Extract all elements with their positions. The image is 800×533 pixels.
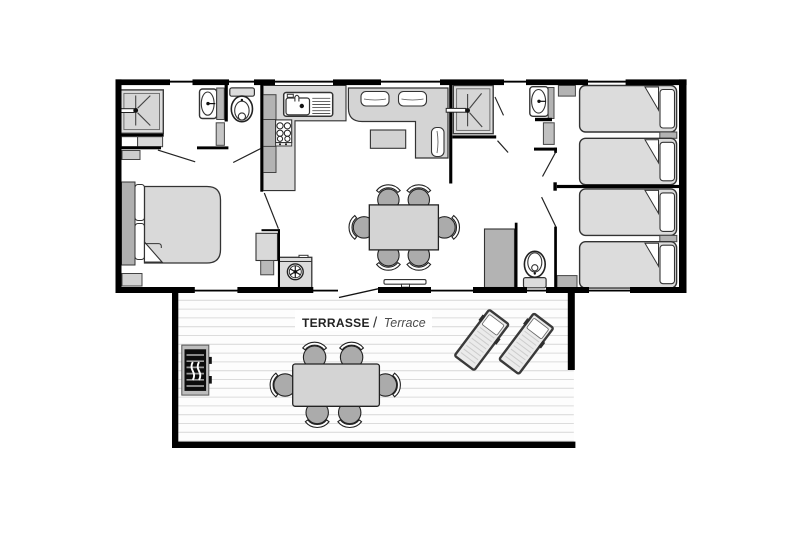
svg-text:Terrace: Terrace [384,316,426,330]
svg-text:TERRASSE: TERRASSE [302,316,370,330]
